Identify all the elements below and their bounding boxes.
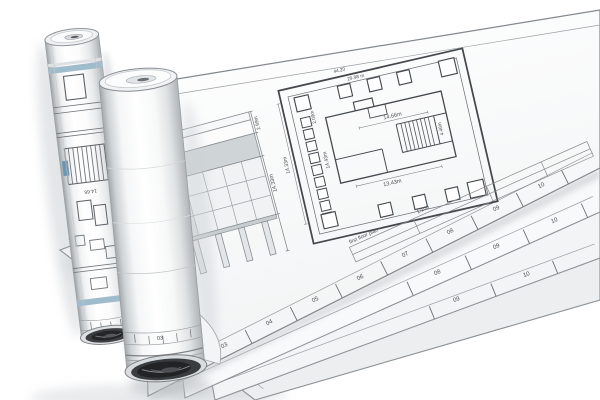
ruler-number: 03 <box>157 335 164 342</box>
blueprint-scene: 13 09 10 08 09 10 03 04 05 06 07 08 0 <box>0 0 600 400</box>
blueprint-render: 13 09 10 08 09 10 03 04 05 06 07 08 0 <box>0 0 600 400</box>
